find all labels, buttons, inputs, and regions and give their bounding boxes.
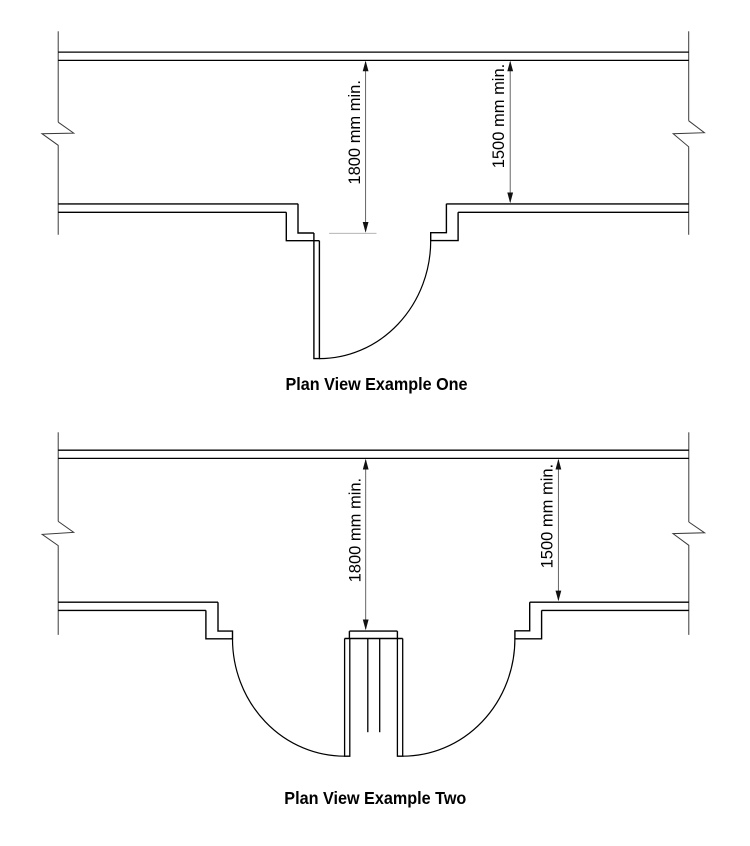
- svg-text:1500 mm min.: 1500 mm min.: [539, 464, 557, 569]
- svg-text:Plan View Example Two: Plan View Example Two: [284, 788, 466, 808]
- svg-text:1800 mm min.: 1800 mm min.: [346, 80, 364, 185]
- svg-text:1500 mm min.: 1500 mm min.: [490, 64, 508, 169]
- svg-text:1800 mm min.: 1800 mm min.: [346, 478, 364, 583]
- svg-text:Plan View Example One: Plan View Example One: [286, 374, 468, 394]
